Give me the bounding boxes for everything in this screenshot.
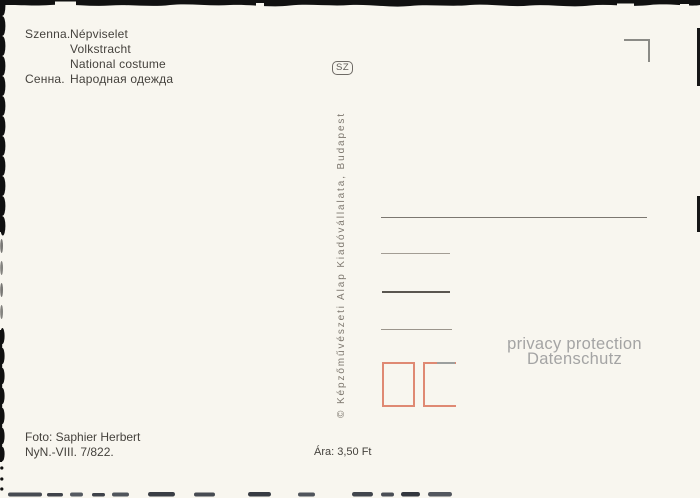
- corner-crop-mark: [624, 39, 650, 62]
- address-line-4: [381, 329, 452, 330]
- privacy-watermark-line2: Datenschutz: [497, 352, 652, 367]
- publisher-vertical-text: © Képzőművészeti Alap Kiadóvállalata, Bu…: [336, 86, 352, 418]
- caption-text-en: National costume: [70, 57, 173, 72]
- stamp-box-1: [382, 362, 415, 407]
- caption-text-hu: Népviselet: [70, 27, 173, 42]
- caption-text-de: Volkstracht: [70, 42, 173, 57]
- address-line-3: [382, 291, 450, 293]
- caption-label-hu: Szenna.: [25, 27, 70, 42]
- photo-credit: Foto: Saphier Herbert: [25, 430, 140, 445]
- caption-label-ru: Сенна.: [25, 72, 70, 87]
- caption-block: Szenna. Népviselet Volkstracht National …: [25, 27, 173, 87]
- torn-edge-left: [0, 0, 9, 498]
- torn-edge-top: [0, 0, 700, 11]
- caption-text-ru: Народная одежда: [70, 72, 173, 87]
- catalog-number: NyN.-VIII. 7/822.: [25, 445, 114, 460]
- privacy-watermark: privacy protection Datenschutz: [497, 337, 652, 366]
- price-label: Ára: 3,50 Ft: [314, 445, 371, 460]
- caption-label-empty-2: [25, 57, 70, 72]
- caption-label-empty-1: [25, 42, 70, 57]
- stamp-box-2: [423, 362, 456, 407]
- address-line-2: [381, 253, 450, 254]
- torn-edge-bottom: [0, 488, 700, 498]
- address-line-1: [381, 217, 647, 218]
- sz-badge: SZ: [332, 61, 353, 75]
- postcard-back: Szenna. Népviselet Volkstracht National …: [0, 0, 700, 498]
- stamp-box-2-gray-segment: [437, 362, 455, 364]
